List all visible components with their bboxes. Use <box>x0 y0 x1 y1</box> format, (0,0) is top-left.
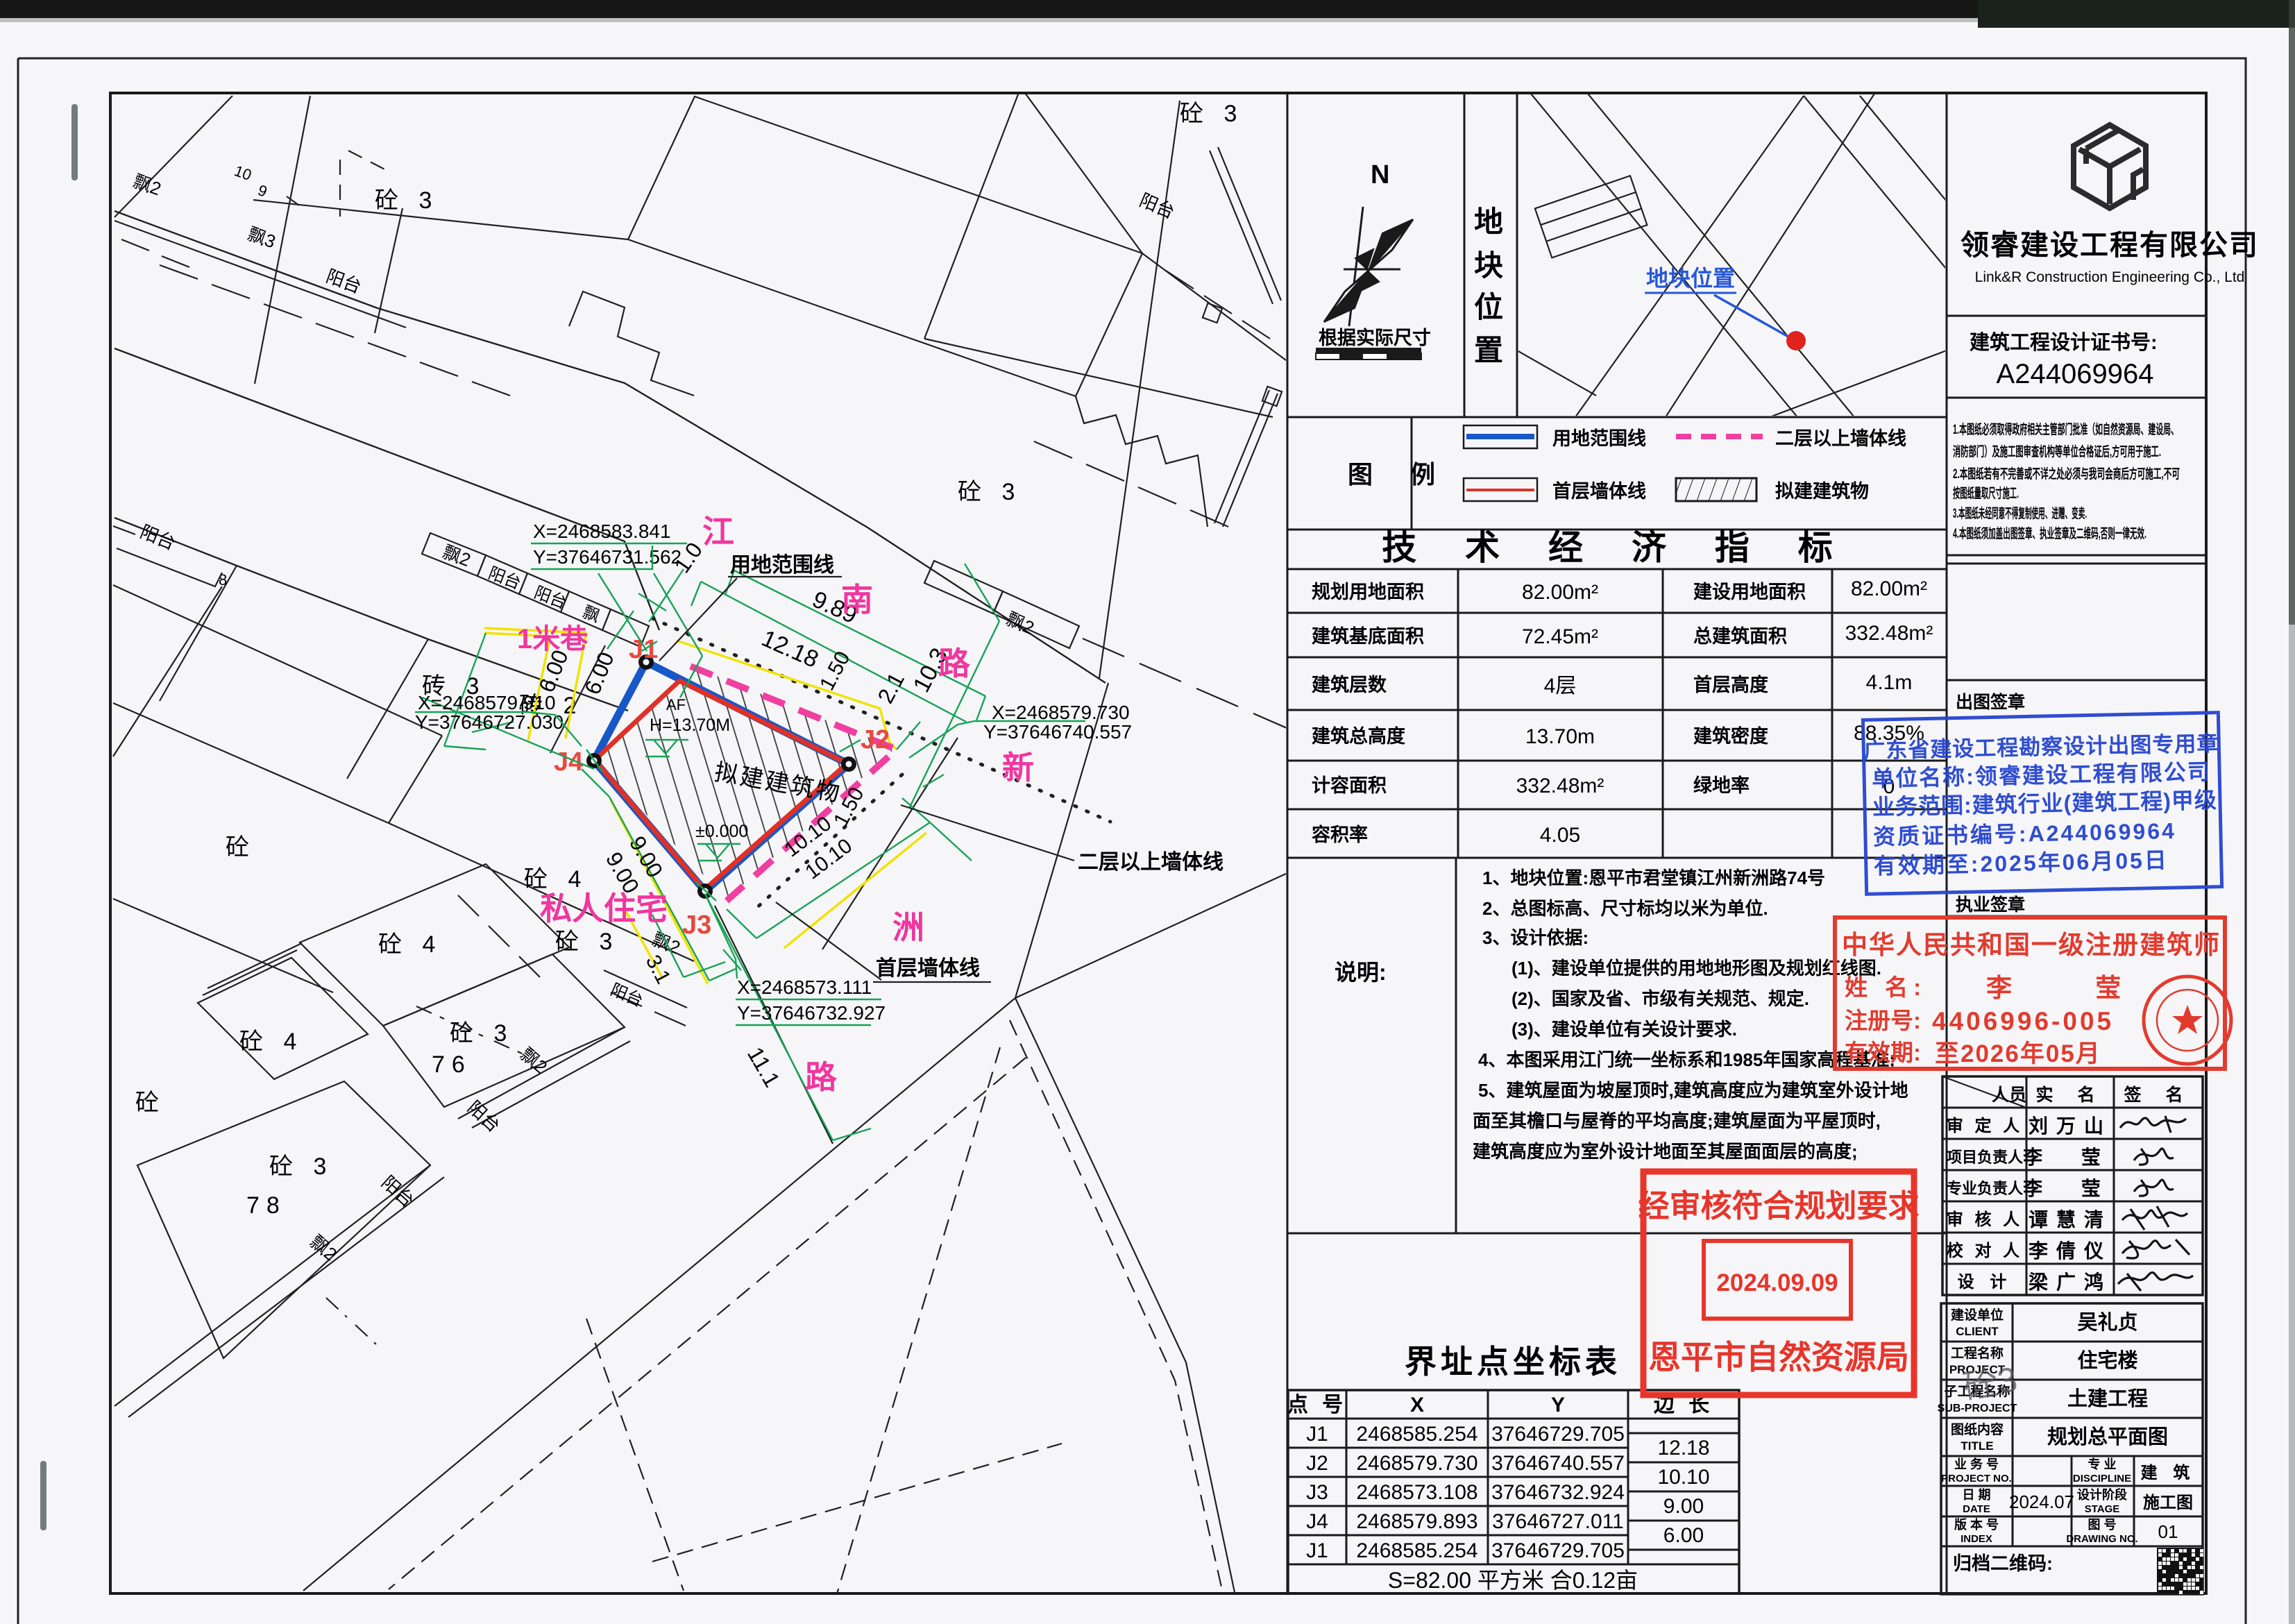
svg-text:签 名: 签 名 <box>2124 1085 2193 1105</box>
svg-text:恩平市自然资源局: 恩平市自然资源局 <box>1648 1339 1909 1376</box>
svg-text:用地范围线: 用地范围线 <box>730 554 834 577</box>
svg-text:校 对 人: 校 对 人 <box>1947 1241 2023 1260</box>
svg-text:Y=37646732.927: Y=37646732.927 <box>737 1002 886 1024</box>
svg-text:首层高度: 首层高度 <box>1693 674 1768 695</box>
svg-text:路: 路 <box>938 645 971 682</box>
svg-text:图纸内容: 图纸内容 <box>1951 1421 2004 1437</box>
svg-text:图 例: 图 例 <box>1348 460 1450 489</box>
svg-text:76: 76 <box>432 1051 472 1078</box>
svg-text:建筑密度: 建筑密度 <box>1693 725 1768 747</box>
svg-text:拟建建筑物: 拟建建筑物 <box>1775 480 1869 502</box>
svg-text:X: X <box>1410 1394 1424 1416</box>
svg-text:领睿建设工程有限公司: 领睿建设工程有限公司 <box>1961 229 2259 261</box>
svg-text:按图纸量取尺寸施工.: 按图纸量取尺寸施工. <box>1953 485 2019 501</box>
svg-text:归档二维码:: 归档二维码: <box>1953 1553 2053 1574</box>
svg-text:CLIENT: CLIENT <box>1956 1325 1999 1338</box>
svg-text:4层: 4层 <box>1544 675 1577 697</box>
svg-text:注册号:: 注册号: <box>1845 1008 1921 1033</box>
svg-text:江: 江 <box>702 514 734 550</box>
svg-text:用地范围线: 用地范围线 <box>1552 428 1646 449</box>
svg-text:砼: 砼 <box>226 834 256 861</box>
svg-text:2468573.108: 2468573.108 <box>1356 1481 1477 1504</box>
svg-text:设计阶段: 设计阶段 <box>2077 1487 2128 1502</box>
svg-text:砼: 砼 <box>135 1090 166 1116</box>
svg-text:A244069964: A244069964 <box>1997 359 2154 389</box>
svg-text:37646729.705: 37646729.705 <box>1491 1423 1625 1446</box>
svg-text:经审核符合规划要求: 经审核符合规划要求 <box>1638 1188 1919 1224</box>
svg-text:DATE: DATE <box>1963 1503 1990 1515</box>
svg-text:±0.000: ±0.000 <box>695 822 748 841</box>
svg-text:X=2468583.841: X=2468583.841 <box>533 521 671 542</box>
svg-text:建 筑: 建 筑 <box>2141 1463 2196 1482</box>
svg-text:私人住宅: 私人住宅 <box>540 890 668 927</box>
svg-text:82.00m²: 82.00m² <box>1851 577 1927 600</box>
svg-text:谭慧清: 谭慧清 <box>2029 1209 2112 1230</box>
svg-text:审 定 人: 审 定 人 <box>1947 1116 2023 1135</box>
svg-text:J1: J1 <box>1306 1539 1328 1562</box>
svg-text:13.70m: 13.70m <box>1525 725 1595 748</box>
svg-text:姓 名:: 姓 名: <box>1845 974 1926 1000</box>
svg-text:砼 3: 砼 3 <box>1180 101 1244 127</box>
svg-text:砼 3: 砼 3 <box>269 1153 333 1180</box>
svg-text:砼 3: 砼 3 <box>450 1020 514 1047</box>
svg-text:AF: AF <box>666 696 686 713</box>
svg-text:72.45m²: 72.45m² <box>1522 625 1598 648</box>
svg-text:版 本 号: 版 本 号 <box>1954 1517 1999 1532</box>
svg-text:37646727.011: 37646727.011 <box>1492 1510 1624 1533</box>
svg-text:新: 新 <box>1002 750 1034 786</box>
svg-text:洲: 洲 <box>892 909 924 945</box>
svg-text:2、总图标高、尺寸标均以米为单位.: 2、总图标高、尺寸标均以米为单位. <box>1482 898 1768 919</box>
svg-text:Y=37646740.557: Y=37646740.557 <box>983 721 1132 743</box>
svg-text:吴礼贞: 吴礼贞 <box>2077 1311 2137 1334</box>
svg-text:DISCIPLINE: DISCIPLINE <box>2073 1473 2131 1485</box>
svg-text:(1)、建设单位提供的用地地形图及规划红线图.: (1)、建设单位提供的用地地形图及规划红线图. <box>1511 958 1881 979</box>
svg-text:专业负责人: 专业负责人 <box>1947 1180 2023 1197</box>
svg-text:施工图: 施工图 <box>2143 1493 2193 1512</box>
svg-text:日 期: 日 期 <box>1962 1488 1990 1502</box>
svg-text:DRAWING NO.: DRAWING NO. <box>2066 1533 2137 1545</box>
svg-text:1米巷: 1米巷 <box>517 624 588 654</box>
svg-text:建筑工程设计证书号:: 建筑工程设计证书号: <box>1970 331 2158 354</box>
svg-text:Y=37646727.030: Y=37646727.030 <box>415 711 564 733</box>
svg-text:2468579.730: 2468579.730 <box>1356 1452 1477 1475</box>
svg-text:住宅楼: 住宅楼 <box>2077 1348 2137 1372</box>
svg-text:面至其檐口与屋脊的平均高度;建筑屋面为平屋顶时,: 面至其檐口与屋脊的平均高度;建筑屋面为平屋顶时, <box>1473 1110 1881 1131</box>
svg-text:砼 3: 砼 3 <box>958 479 1022 505</box>
svg-text:4、本图采用江门统一坐标系和1985年国家高程基准;: 4、本图采用江门统一坐标系和1985年国家高程基准; <box>1478 1049 1895 1070</box>
svg-text:人员: 人员 <box>1992 1085 2026 1105</box>
svg-text:李倩仪: 李倩仪 <box>2029 1240 2112 1262</box>
svg-text:Link&R Construction Engineerin: Link&R Construction Engineering Co., Ltd <box>1975 269 2245 285</box>
svg-text:界址点坐标表: 界址点坐标表 <box>1405 1344 1621 1380</box>
svg-text:建设用地面积: 建设用地面积 <box>1693 582 1806 602</box>
svg-text:S=82.00 平方米 合0.12亩: S=82.00 平方米 合0.12亩 <box>1388 1568 1638 1593</box>
svg-text:3.本图纸未经同意不得复制使用、进赠、变卖.: 3.本图纸未经同意不得复制使用、进赠、变卖. <box>1953 505 2087 521</box>
svg-text:业 务 号: 业 务 号 <box>1954 1457 1999 1471</box>
svg-text:块: 块 <box>1474 249 1503 282</box>
svg-text:(2)、国家及省、市级有关规范、规定.: (2)、国家及省、市级有关规范、规定. <box>1511 988 1809 1009</box>
svg-text:H=13.70M: H=13.70M <box>650 716 730 735</box>
svg-text:李 莹: 李 莹 <box>1986 974 2159 1002</box>
svg-text:STAGE: STAGE <box>2085 1503 2120 1515</box>
svg-text:Y=37646731.562: Y=37646731.562 <box>533 546 681 568</box>
svg-text:332.48m²: 332.48m² <box>1845 622 1933 645</box>
svg-text:规划用地面积: 规划用地面积 <box>1312 582 1424 602</box>
svg-text:首层墙体线: 首层墙体线 <box>1552 480 1646 502</box>
svg-text:计容面积: 计容面积 <box>1312 775 1387 796</box>
svg-text:建筑层数: 建筑层数 <box>1312 674 1387 695</box>
svg-text:砼 3: 砼 3 <box>375 187 439 214</box>
svg-text:至2026年05月: 至2026年05月 <box>1935 1040 2101 1067</box>
svg-text:有效期:: 有效期: <box>1845 1040 1921 1065</box>
svg-text:N: N <box>1371 160 1389 189</box>
svg-text:二层以上墙体线: 二层以上墙体线 <box>1775 428 1906 449</box>
svg-text:X=2468573.111: X=2468573.111 <box>737 976 872 998</box>
svg-text:砼 4: 砼 4 <box>378 931 442 958</box>
svg-text:4.05: 4.05 <box>1540 824 1580 847</box>
svg-text:专 业: 专 业 <box>2087 1457 2116 1471</box>
svg-text:规划总平面图: 规划总平面图 <box>2047 1426 2168 1448</box>
svg-text:实 名: 实 名 <box>2036 1085 2105 1105</box>
svg-text:地块位置: 地块位置 <box>1646 266 1735 291</box>
svg-text:位: 位 <box>1474 291 1503 323</box>
svg-text:5、建筑屋面为坡屋顶时,建筑高度应为建筑室外设计地: 5、建筑屋面为坡屋顶时,建筑高度应为建筑室外设计地 <box>1478 1080 1908 1101</box>
svg-text:TITLE: TITLE <box>1961 1439 1993 1453</box>
svg-text:1.本图纸必须取得政府相关主管部门批准（如自然资源局、建设局: 1.本图纸必须取得政府相关主管部门批准（如自然资源局、建设局、 <box>1953 421 2178 437</box>
svg-text:砼 3: 砼 3 <box>555 929 619 955</box>
svg-text:二层以上墙体线: 二层以上墙体线 <box>1078 851 1223 874</box>
svg-text:2468585.254: 2468585.254 <box>1356 1423 1477 1446</box>
svg-text:12.18: 12.18 <box>1657 1437 1709 1460</box>
svg-text:技 术 经 济 指 标: 技 术 经 济 指 标 <box>1382 528 1852 567</box>
svg-text:9.00: 9.00 <box>1663 1495 1704 1518</box>
svg-text:南: 南 <box>841 582 873 618</box>
svg-text:PROJECT NO.: PROJECT NO. <box>1941 1473 2012 1485</box>
svg-text:建筑高度应为室外设计地面至其屋面面层的高度;: 建筑高度应为室外设计地面至其屋面面层的高度; <box>1473 1141 1858 1162</box>
svg-text:路: 路 <box>805 1059 838 1095</box>
svg-text:J2: J2 <box>861 725 890 754</box>
svg-text:J1: J1 <box>1306 1423 1328 1446</box>
svg-text:J4: J4 <box>1306 1510 1328 1533</box>
svg-text:8: 8 <box>219 571 227 589</box>
svg-text:6.00: 6.00 <box>1663 1524 1704 1547</box>
svg-text:砼 4: 砼 4 <box>239 1029 303 1055</box>
svg-text:出图签章: 出图签章 <box>1956 692 2025 712</box>
svg-text:图 号: 图 号 <box>2087 1518 2116 1532</box>
svg-text:设 计: 设 计 <box>1958 1273 2013 1292</box>
svg-text:项目负责人: 项目负责人 <box>1947 1149 2023 1166</box>
svg-text:执业签章: 执业签章 <box>1956 895 2025 915</box>
svg-text:2024.09.09: 2024.09.09 <box>1716 1269 1838 1296</box>
svg-text:李 莹: 李 莹 <box>2023 1178 2117 1199</box>
svg-text:J3: J3 <box>1306 1481 1328 1504</box>
svg-text:建筑基底面积: 建筑基底面积 <box>1312 625 1424 647</box>
svg-text:消防部门）及施工图审查机构等单位合格证后,方可用于施工.: 消防部门）及施工图审查机构等单位合格证后,方可用于施工. <box>1953 443 2161 459</box>
svg-text:总建筑面积: 总建筑面积 <box>1693 625 1787 647</box>
svg-text:李 莹: 李 莹 <box>2023 1147 2117 1168</box>
svg-text:3、设计依据:: 3、设计依据: <box>1482 927 1589 948</box>
svg-text:建筑总高度: 建筑总高度 <box>1312 725 1405 747</box>
svg-text:37646740.557: 37646740.557 <box>1491 1452 1625 1475</box>
svg-text:地: 地 <box>1474 205 1503 238</box>
svg-text:绿地率: 绿地率 <box>1693 775 1750 796</box>
svg-text:刘万山: 刘万山 <box>2029 1115 2112 1137</box>
svg-text:78: 78 <box>246 1192 287 1219</box>
svg-text:J3: J3 <box>682 911 711 940</box>
svg-text:中华人民共和国一级注册建筑师: 中华人民共和国一级注册建筑师 <box>1842 931 2221 959</box>
svg-text:4.本图纸须加盖出图签章、执业签章及二维码,否则一律无效.: 4.本图纸须加盖出图签章、执业签章及二维码,否则一律无效. <box>1953 525 2146 541</box>
svg-text:37646729.705: 37646729.705 <box>1491 1539 1625 1562</box>
svg-text:梁广鸿: 梁广鸿 <box>2028 1271 2112 1293</box>
svg-text:X=2468579.910: X=2468579.910 <box>418 692 556 713</box>
svg-text:332.48m²: 332.48m² <box>1516 775 1604 797</box>
svg-text:INDEX: INDEX <box>1961 1533 1992 1545</box>
svg-text:J2: J2 <box>1306 1452 1328 1475</box>
svg-text:审 核 人: 审 核 人 <box>1947 1210 2023 1229</box>
svg-text:根据实际尺寸: 根据实际尺寸 <box>1319 327 1431 348</box>
svg-text:01: 01 <box>2158 1521 2178 1542</box>
svg-text:4.1m: 4.1m <box>1866 671 1913 694</box>
svg-text:10.10: 10.10 <box>1657 1466 1709 1489</box>
svg-text:土建工程: 土建工程 <box>2067 1387 2148 1410</box>
svg-text:置: 置 <box>1474 334 1503 366</box>
svg-text:2.本图纸若有不完善或不详之处必须与我司会商后方可施工,不可: 2.本图纸若有不完善或不详之处必须与我司会商后方可施工,不可 <box>1953 466 2180 482</box>
svg-text:建设单位: 建设单位 <box>1951 1307 2004 1323</box>
svg-text:工程名称: 工程名称 <box>1951 1345 2004 1361</box>
svg-text:首层墙体线: 首层墙体线 <box>876 957 980 980</box>
svg-text:X=2468579.730: X=2468579.730 <box>992 702 1130 723</box>
svg-text:砼 4: 砼 4 <box>524 866 588 893</box>
svg-text:82.00m²: 82.00m² <box>1522 581 1598 604</box>
svg-text:1、地块位置:恩平市君堂镇江州新洲路74号: 1、地块位置:恩平市君堂镇江州新洲路74号 <box>1482 868 1825 888</box>
svg-text:2468585.254: 2468585.254 <box>1356 1539 1477 1562</box>
svg-text:37646732.924: 37646732.924 <box>1491 1481 1625 1504</box>
svg-text:2468579.893: 2468579.893 <box>1356 1510 1477 1533</box>
svg-text:4406996-005: 4406996-005 <box>1932 1007 2114 1035</box>
svg-text:点 号: 点 号 <box>1287 1394 1347 1416</box>
svg-text:2024.07: 2024.07 <box>2009 1491 2074 1512</box>
svg-text:Y: Y <box>1551 1394 1565 1416</box>
svg-text:容积率: 容积率 <box>1312 824 1368 845</box>
svg-text:(3)、建设单位有关设计要求.: (3)、建设单位有关设计要求. <box>1511 1019 1737 1040</box>
svg-text:说明:: 说明: <box>1335 960 1387 985</box>
